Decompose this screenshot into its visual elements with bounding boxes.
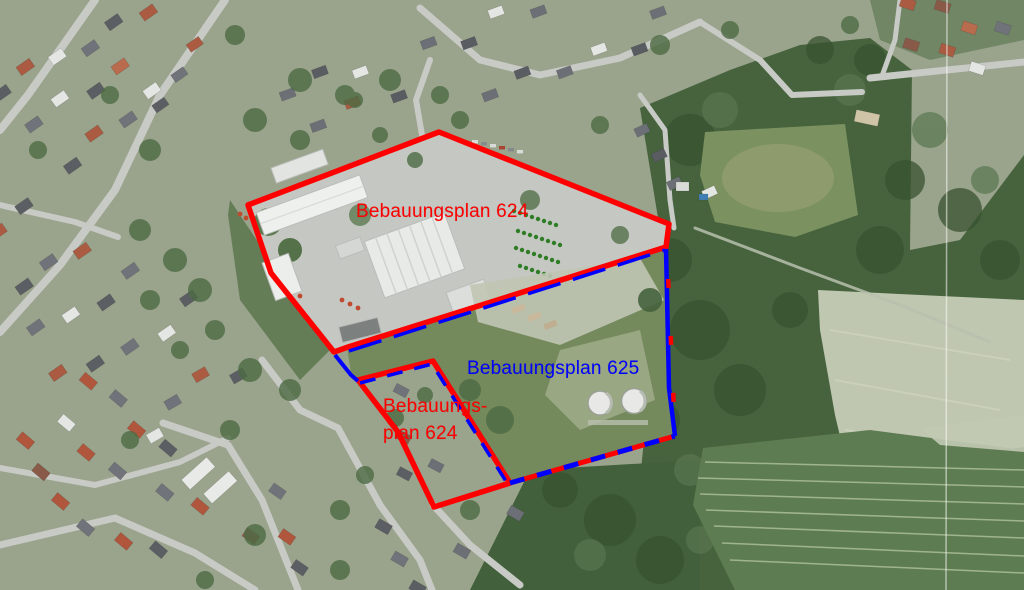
plan-boundary-overlay <box>0 0 1024 590</box>
plan-624-boundary-south <box>358 361 510 507</box>
plan-624-boundary-main <box>248 132 669 352</box>
aerial-map-viewport: Bebauungsplan 624 Bebauungsplan 625 Beba… <box>0 0 1024 590</box>
plan-625-boundary <box>335 249 675 486</box>
